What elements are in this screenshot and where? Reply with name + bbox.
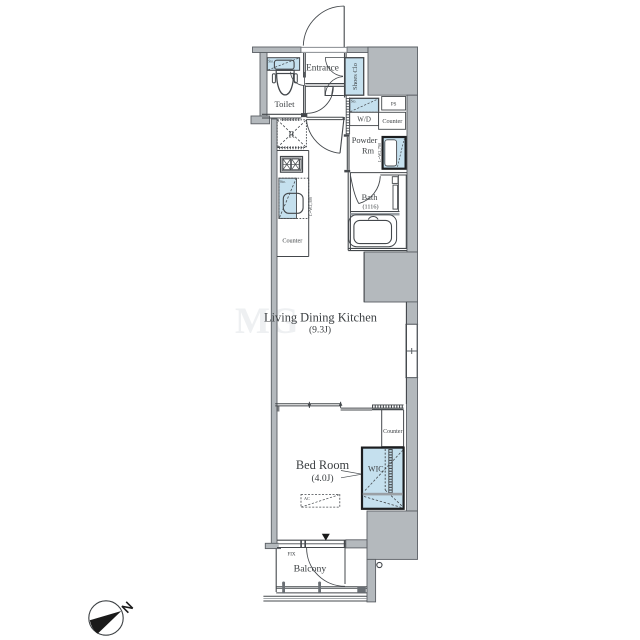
svg-text:AC: AC [304, 496, 310, 501]
svg-text:Bed Room: Bed Room [296, 458, 350, 472]
svg-text:Bath: Bath [362, 193, 379, 202]
svg-text:Toilet: Toilet [275, 99, 296, 109]
svg-text:W/D: W/D [357, 116, 371, 124]
svg-text:PS: PS [391, 103, 397, 108]
svg-text:WIC: WIC [368, 465, 384, 474]
svg-text:Shoes Clo: Shoes Clo [352, 62, 359, 90]
svg-text:Powder: Powder [352, 136, 378, 145]
svg-text:(9.3J): (9.3J) [309, 324, 331, 335]
svg-text:Counter: Counter [382, 118, 402, 125]
svg-text:Entrance: Entrance [306, 63, 339, 73]
svg-text:Counter: Counter [383, 429, 402, 435]
svg-text:Living Dining Kitchen: Living Dining Kitchen [264, 310, 377, 324]
svg-text:Sto.: Sto. [280, 180, 286, 184]
svg-text:Rm: Rm [362, 147, 375, 156]
svg-text:FIX: FIX [287, 553, 295, 558]
svg-text:Sto.: Sto. [351, 100, 357, 104]
svg-text:R: R [288, 130, 294, 140]
svg-text:Sto.: Sto. [268, 59, 274, 63]
svg-text:(4.0J): (4.0J) [311, 473, 333, 484]
svg-text:(1116): (1116) [362, 204, 378, 211]
svg-text:Counter: Counter [282, 238, 302, 245]
svg-text:Balcony: Balcony [294, 564, 327, 575]
